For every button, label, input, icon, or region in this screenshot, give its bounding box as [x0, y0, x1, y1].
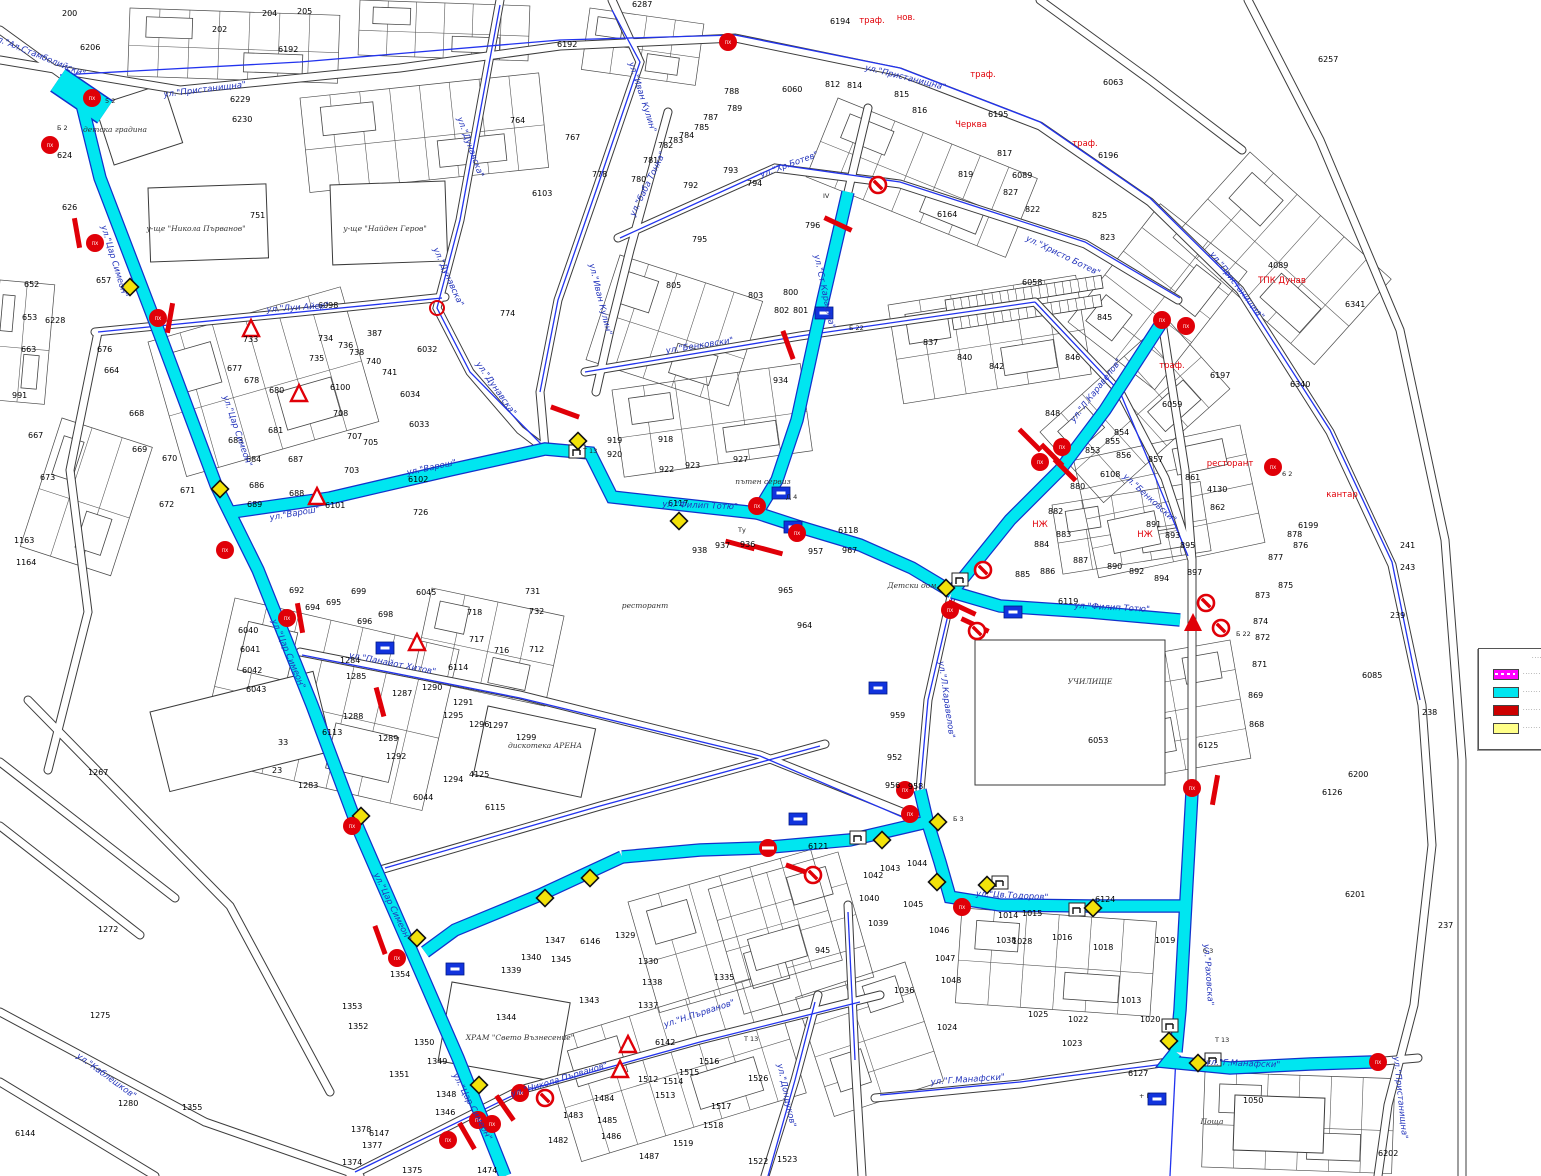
parcel-number: 676: [97, 345, 112, 354]
fire-hydrant-marker[interactable]: ПХ: [941, 601, 959, 619]
parcel-number: 1020: [1140, 1015, 1160, 1024]
water-pipe-line: [1170, 1056, 1176, 1176]
parcel-number: 1349: [427, 1057, 447, 1066]
parcel-number: 878: [1287, 530, 1302, 539]
fire-hydrant-marker[interactable]: ПХ: [719, 33, 737, 51]
parcel-number: 1329: [615, 931, 635, 940]
parcel-number: 875: [1278, 581, 1293, 590]
street-name-label: ул."Л.Каравелов": [935, 660, 956, 740]
road-surface: [205, 1122, 360, 1176]
parcel-number: 1487: [639, 1152, 659, 1161]
map-canvas[interactable]: ПХПХПХПХПХПХПХПХПХПХПХПХПХПХПХПХПХПХПХПХ…: [0, 0, 1541, 1176]
svg-text:ПХ: ПХ: [1037, 460, 1043, 466]
parcel-number: 6257: [1318, 55, 1338, 64]
parcel-number: 1280: [118, 1099, 138, 1108]
parcel-number: 726: [413, 508, 428, 517]
area-label: Поща: [1199, 1117, 1223, 1126]
parcel-number: 764: [510, 116, 525, 125]
parcel-number: 918: [658, 435, 673, 444]
parcel-number: 956: [885, 781, 900, 790]
area-label: у-ще "Найден Геров": [342, 224, 427, 233]
parcel-number: 959: [890, 711, 905, 720]
parcel-number: 1346: [435, 1108, 455, 1117]
parcel-number: 687: [288, 455, 303, 464]
fire-hydrant-marker[interactable]: ПХ: [1177, 317, 1195, 335]
road-surface: [0, 762, 175, 898]
parcel-number: 667: [28, 431, 43, 440]
parcel-number: 6340: [1290, 380, 1310, 389]
parcel-number: 1338: [642, 978, 662, 987]
parcel-number: 4089: [1268, 261, 1288, 270]
no-entry-sign-icon[interactable]: [969, 623, 985, 639]
map-annotation: Т 13: [743, 1035, 758, 1043]
parcel-number: 1339: [501, 966, 521, 975]
parcel-number: 692: [289, 586, 304, 595]
fire-hydrant-marker[interactable]: ПХ: [1264, 458, 1282, 476]
parcel-number: 1516: [699, 1057, 719, 1066]
parcel-number: 671: [180, 486, 195, 495]
svg-text:ПХ: ПХ: [284, 616, 290, 622]
parcel-number: 871: [1252, 660, 1267, 669]
road-surface: [540, 0, 640, 449]
parcel-number: 6341: [1345, 300, 1365, 309]
parcel-number: 4125: [469, 770, 489, 779]
parcel-number: 6199: [1298, 521, 1318, 530]
parcel-number: 840: [957, 353, 972, 362]
fire-hydrant-marker[interactable]: ПХ: [439, 1131, 457, 1149]
parcel-number: 6192: [557, 40, 577, 49]
hydrant-box-icon[interactable]: [952, 573, 968, 586]
blue-hydrant-icon[interactable]: [789, 813, 807, 825]
parcel-number: 872: [1255, 633, 1270, 642]
parcel-number: 241: [1400, 541, 1415, 550]
parcel-number: 6287: [632, 0, 652, 9]
red-valve-bar-icon[interactable]: [374, 687, 387, 717]
parcel-number: 927: [733, 455, 748, 464]
parcel-number: 958: [908, 782, 923, 791]
parcel-number: 1297: [488, 721, 508, 730]
parcel-number: 1375: [402, 1166, 422, 1175]
fire-hydrant-marker[interactable]: ПХ: [953, 898, 971, 916]
parcel-number: 6142: [655, 1038, 675, 1047]
parcel-number: 853: [1085, 446, 1100, 455]
parcel-number: 857: [1148, 455, 1163, 464]
building-footprint: [473, 706, 595, 797]
fire-hydrant-marker[interactable]: ПХ: [1031, 453, 1049, 471]
parcel-number: 1294: [443, 775, 463, 784]
parcel-number: 624: [57, 151, 72, 160]
hydrant-box-icon[interactable]: [850, 831, 866, 844]
parcel-number: 788: [724, 87, 739, 96]
svg-text:ПХ: ПХ: [947, 608, 953, 614]
parcel-number: 1485: [597, 1116, 617, 1125]
parcel-number: 964: [797, 621, 812, 630]
parcel-number: 652: [24, 280, 39, 289]
parcel-number: 717: [469, 635, 484, 644]
parcel-number: 1028: [1012, 937, 1032, 946]
red-annotation-label: нов.: [897, 13, 915, 23]
parcel-number: 882: [1048, 507, 1063, 516]
parcel-number: 664: [104, 366, 119, 375]
red-valve-bar-icon[interactable]: [1018, 428, 1043, 453]
parcel-number: 1018: [1093, 943, 1113, 952]
parcel-number: 718: [467, 608, 482, 617]
water-main-highlight[interactable]: [757, 192, 848, 513]
parcel-number: 6144: [15, 1129, 35, 1138]
parcel-number: 1377: [362, 1141, 382, 1150]
fire-hydrant-marker[interactable]: ПХ: [1369, 1053, 1387, 1071]
parcel-number: 732: [529, 607, 544, 616]
legend-swatch-yellow: [1493, 723, 1519, 734]
parcel-number: 705: [363, 438, 378, 447]
parcel-number: 890: [1107, 562, 1122, 571]
parcel-number: 816: [912, 106, 927, 115]
parcel-number: 6114: [448, 663, 468, 672]
parcel-number: 895: [1180, 541, 1195, 550]
fire-hydrant-marker[interactable]: ПХ: [748, 497, 766, 515]
parcel-number: 677: [227, 364, 242, 373]
parcel-number: 6125: [1198, 741, 1218, 750]
parcel-number: 827: [1003, 188, 1018, 197]
legend-header: ·····: [1479, 655, 1541, 663]
blue-hydrant-icon[interactable]: [376, 642, 394, 654]
parcel-number: 1522: [748, 1157, 768, 1166]
parcel-number: 842: [989, 362, 1004, 371]
parcel-number: 387: [367, 329, 382, 338]
parcel-number: 6059: [1162, 400, 1182, 409]
svg-text:ПХ: ПХ: [47, 143, 53, 149]
parcel-number: 657: [96, 276, 111, 285]
parcel-number: 817: [997, 149, 1012, 158]
svg-text:ПХ: ПХ: [445, 1138, 451, 1144]
red-annotation-label: траф.: [1072, 139, 1098, 149]
parcel-number: 1517: [711, 1102, 731, 1111]
parcel-number: 6058: [1022, 278, 1042, 287]
parcel-number: 884: [1034, 540, 1049, 549]
parcel-number: 6200: [1348, 770, 1368, 779]
parcel-number: 789: [727, 104, 742, 113]
parcel-number: 1040: [859, 894, 879, 903]
parcel-number: 1483: [563, 1111, 583, 1120]
parcel-number: 1482: [548, 1136, 568, 1145]
map-annotation: Б 22: [1236, 630, 1251, 638]
parcel-number: 741: [382, 368, 397, 377]
parcel-number: 6229: [230, 95, 250, 104]
red-valve-bar-icon[interactable]: [72, 218, 82, 248]
parcel-block: [0, 280, 55, 404]
area-label: УЧИЛИЩЕ: [1068, 677, 1113, 686]
road-surface: [1040, 0, 1242, 150]
legend-swatch-cyan: [1493, 687, 1519, 698]
parcel-number: 1016: [1052, 933, 1072, 942]
parcel-number: 6230: [232, 115, 252, 124]
parcel-number: 793: [723, 166, 738, 175]
red-annotation-label: Черква: [955, 120, 987, 130]
parcel-number: 1267: [88, 768, 108, 777]
parcel-number: 1353: [342, 1002, 362, 1011]
parcel-number: 800: [783, 288, 798, 297]
parcel-number: 1044: [907, 859, 927, 868]
parcel-number: 934: [773, 376, 788, 385]
red-valve-bar-icon[interactable]: [753, 544, 783, 557]
parcel-number: 814: [847, 81, 862, 90]
parcel-block: [300, 73, 549, 193]
parcel-number: 1292: [386, 752, 406, 761]
red-annotation-label: ресторант: [1207, 459, 1254, 469]
parcel-number: 6034: [400, 390, 420, 399]
parcel-number: 6195: [988, 110, 1008, 119]
blue-hydrant-icon[interactable]: [446, 963, 464, 975]
parcel-number: 891: [1146, 520, 1161, 529]
water-main-highlight[interactable]: [920, 790, 1186, 906]
red-valve-bar-icon[interactable]: [295, 603, 305, 633]
no-entry-sign-icon[interactable]: [1198, 595, 1214, 611]
parcel-number: 785: [694, 123, 709, 132]
parcel-number: 876: [1293, 541, 1308, 550]
parcel-number: 1474: [477, 1166, 497, 1175]
parcel-number: 886: [1040, 567, 1055, 576]
parcel-number: 1337: [638, 1001, 658, 1010]
no-entry-sign-icon[interactable]: [975, 562, 991, 578]
fire-hydrant-marker[interactable]: ПХ: [149, 309, 167, 327]
map-annotation: Д 4: [786, 493, 797, 501]
map-annotation: Т 13: [1214, 1036, 1229, 1044]
parcel-number: 1351: [389, 1070, 409, 1079]
svg-text:ПХ: ПХ: [754, 504, 760, 510]
parcel-number: 668: [129, 409, 144, 418]
fire-hydrant-marker[interactable]: ПХ: [83, 89, 101, 107]
parcel-number: 6113: [322, 728, 342, 737]
red-triangle-filled-marker[interactable]: [1184, 613, 1202, 631]
map-legend: ····· ············ ··········· ·········…: [1478, 648, 1541, 750]
red-annotation-label: ТПК Дунав: [1257, 276, 1306, 286]
parcel-number: 6089: [1012, 171, 1032, 180]
parcel-number: 653: [22, 313, 37, 322]
parcel-number: 1295: [443, 711, 463, 720]
no-entry-brick-icon[interactable]: [759, 839, 777, 857]
parcel-number: 1374: [342, 1158, 362, 1167]
red-annotation-label: траф.: [1159, 361, 1185, 371]
parcel-number: 1046: [929, 926, 949, 935]
blue-hydrant-icon[interactable]: [869, 682, 887, 694]
parcel-number: 696: [357, 617, 372, 626]
area-label: дискотека АРЕНА: [508, 741, 582, 750]
parcel-number: 626: [62, 203, 77, 212]
parcel-number: 689: [247, 500, 262, 509]
red-valve-bar-icon[interactable]: [1210, 775, 1220, 805]
parcel-number: 778: [592, 170, 607, 179]
red-annotation-label: траф.: [970, 70, 996, 80]
parcel-number: 1512: [638, 1075, 658, 1084]
svg-text:ПХ: ПХ: [725, 40, 731, 46]
parcel-number: 887: [1073, 556, 1088, 565]
parcel-number: 1518: [703, 1121, 723, 1130]
parcel-number: 6053: [1088, 736, 1108, 745]
parcel-number: 1045: [903, 900, 923, 909]
hydrant-box-icon[interactable]: [1069, 903, 1085, 916]
parcel-number: 1023: [1062, 1039, 1082, 1048]
parcel-number: 801: [793, 306, 808, 315]
parcel-number: 6040: [238, 626, 258, 635]
parcel-number: 812: [825, 80, 840, 89]
svg-text:ПХ: ПХ: [1189, 786, 1195, 792]
svg-text:ПХ: ПХ: [1059, 445, 1065, 451]
parcel-number: 6121: [808, 842, 828, 851]
parcel-number: 1048: [941, 976, 961, 985]
parcel-number: 6124: [1095, 895, 1115, 904]
parcel-number: 877: [1268, 553, 1283, 562]
parcel-number: 1354: [390, 970, 410, 979]
parcel-number: 1024: [937, 1023, 957, 1032]
legend-item-watermain: ···········: [1493, 683, 1541, 701]
fire-hydrant-marker[interactable]: ПХ: [216, 541, 234, 559]
red-triangle-marker[interactable]: [409, 634, 425, 650]
parcel-number: 1039: [868, 919, 888, 928]
building-footprint: [330, 181, 448, 265]
svg-text:ПХ: ПХ: [907, 812, 913, 818]
street-name-label: ул."Цар Симеон": [220, 393, 254, 468]
parcel-number: 1514: [663, 1077, 683, 1086]
legend-item-planned: ············: [1493, 665, 1541, 683]
map-annotation: + Г: [1139, 1092, 1151, 1100]
parcel-number: 738: [349, 348, 364, 357]
parcel-number: 6100: [330, 383, 350, 392]
parcel-number: 708: [333, 409, 348, 418]
map-annotation: IV: [823, 192, 830, 200]
parcel-number: 669: [132, 445, 147, 454]
parcel-number: 6045: [416, 588, 436, 597]
parcel-number: 731: [525, 587, 540, 596]
parcel-number: 6194: [830, 17, 850, 26]
parcel-number: 6115: [485, 803, 505, 812]
gate-valve-icon[interactable]: [671, 513, 688, 530]
parcel-number: 1291: [453, 698, 473, 707]
parcel-number: 1355: [182, 1103, 202, 1112]
parcel-number: 6146: [580, 937, 600, 946]
legend-swatch-magenta: [1493, 669, 1519, 680]
legend-swatch-red: [1493, 705, 1519, 716]
area-label: у-ще "Никола Първанов": [145, 224, 245, 233]
parcel-number: 734: [318, 334, 333, 343]
parcel-number: 1013: [1121, 996, 1141, 1005]
map-annotation: 6 2: [1282, 470, 1292, 478]
fire-hydrant-marker[interactable]: ПХ: [343, 817, 361, 835]
no-entry-sign-icon[interactable]: [805, 867, 821, 883]
parcel-number: 1348: [436, 1090, 456, 1099]
parcel-number: 716: [494, 646, 509, 655]
hydrant-box-icon[interactable]: [1162, 1019, 1178, 1032]
parcel-number: 920: [607, 450, 622, 459]
road-casing: [540, 0, 640, 449]
parcel-number: 796: [805, 221, 820, 230]
fire-hydrant-marker[interactable]: ПХ: [1183, 779, 1201, 797]
parcel-number: 822: [1025, 205, 1040, 214]
parcel-number: 699: [351, 587, 366, 596]
parcel-number: 1285: [346, 672, 366, 681]
parcel-number: 6044: [413, 793, 433, 802]
parcel-number: 6147: [369, 1129, 389, 1138]
parcel-number: 1047: [935, 954, 955, 963]
parcel-number: 6164: [937, 210, 957, 219]
parcel-number: 6032: [417, 345, 437, 354]
svg-text:ПХ: ПХ: [1270, 465, 1276, 471]
parcel-number: 938: [692, 546, 707, 555]
map-annotation: Б 22: [849, 324, 864, 332]
svg-text:ПХ: ПХ: [89, 96, 95, 102]
parcel-number: 707: [347, 432, 362, 441]
parcel-number: 1296: [469, 720, 489, 729]
parcel-number: 1486: [601, 1132, 621, 1141]
parcel-number: 1340: [521, 953, 541, 962]
parcel-number: 6041: [240, 645, 260, 654]
parcel-number: 957: [808, 547, 823, 556]
parcel-number: 885: [1015, 570, 1030, 579]
parcel-number: 1519: [673, 1139, 693, 1148]
red-valve-bar-icon[interactable]: [373, 925, 388, 955]
map-annotation: Б 2: [57, 124, 68, 132]
fire-hydrant-marker[interactable]: ПХ: [901, 805, 919, 823]
svg-text:ПХ: ПХ: [222, 548, 228, 554]
red-valve-bar-icon[interactable]: [550, 405, 580, 420]
blue-hydrant-icon[interactable]: [1004, 606, 1022, 618]
parcel-number: 733: [243, 335, 258, 344]
parcel-number: 922: [659, 465, 674, 474]
no-entry-sign-icon[interactable]: [870, 177, 886, 193]
no-entry-sign-icon[interactable]: [1213, 620, 1229, 636]
building-footprint: [148, 184, 269, 262]
parcel-number: 695: [326, 598, 341, 607]
parcel-number: 6042: [242, 666, 262, 675]
parcel-number: 6202: [1378, 1149, 1398, 1158]
blue-hydrant-icon[interactable]: [1148, 1093, 1166, 1105]
parcel-number: 1526: [748, 1074, 768, 1083]
parcel-number: 6192: [278, 45, 298, 54]
parcel-number: 1513: [655, 1091, 675, 1100]
parcel-number: 923: [685, 461, 700, 470]
parcel-number: 1352: [348, 1022, 368, 1031]
parcel-number: 846: [1065, 353, 1080, 362]
parcel-number: 854: [1114, 428, 1129, 437]
parcel-number: 862: [1210, 503, 1225, 512]
street-name-label: ул."Пристанищна": [863, 63, 947, 93]
parcel-number: 1164: [16, 558, 36, 567]
no-entry-sign-icon[interactable]: [537, 1090, 553, 1106]
parcel-number: 200: [62, 9, 77, 18]
red-triangle-marker[interactable]: [620, 1036, 636, 1052]
parcel-number: 703: [344, 466, 359, 475]
parcel-number: 868: [1249, 720, 1264, 729]
parcel-number: 937: [715, 541, 730, 550]
parcel-number: 952: [887, 753, 902, 762]
parcel-number: 6197: [1210, 371, 1230, 380]
parcel-number: 33: [278, 738, 288, 747]
parcel-number: 670: [162, 454, 177, 463]
parcel-number: 792: [683, 181, 698, 190]
parcel-number: 1347: [545, 936, 565, 945]
red-triangle-marker[interactable]: [243, 320, 259, 336]
map-viewport[interactable]: ПХПХПХПХПХПХПХПХПХПХПХПХПХПХПХПХПХПХПХПХ…: [0, 0, 1541, 1176]
fire-hydrant-marker[interactable]: ПХ: [1153, 311, 1171, 329]
fire-hydrant-marker[interactable]: ПХ: [788, 524, 806, 542]
parcel-number: 6108: [1100, 470, 1120, 479]
parcel-number: 1288: [343, 712, 363, 721]
fire-hydrant-marker[interactable]: ПХ: [1053, 438, 1071, 456]
parcel-number: 784: [679, 131, 694, 140]
road-surface: [1240, 290, 1432, 1176]
fire-hydrant-marker[interactable]: ПХ: [388, 949, 406, 967]
parcel-number: 1287: [392, 689, 412, 698]
parcel-number: 1345: [551, 955, 571, 964]
